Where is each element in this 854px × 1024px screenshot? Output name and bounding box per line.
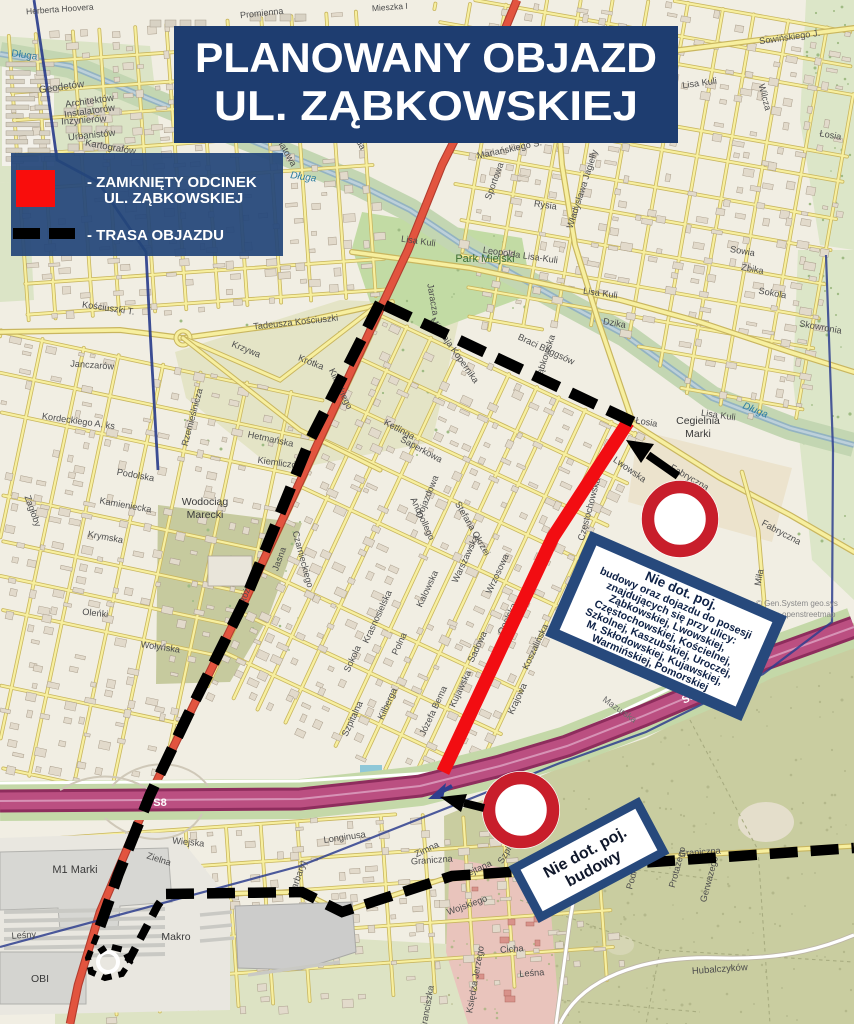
svg-text:OBI: OBI [31,973,49,985]
svg-text:Makro: Makro [161,931,190,943]
svg-text:Cegielnia: Cegielnia [676,415,720,427]
svg-text:© Gen.System geo.sys: © Gen.System geo.sys [756,599,838,608]
svg-text:- TRASA OBJAZDU: - TRASA OBJAZDU [87,227,224,244]
svg-text:Cicha: Cicha [500,943,525,955]
svg-text:Marecki: Marecki [187,509,224,521]
svg-text:Wodociąg: Wodociąg [182,496,229,508]
svg-text:UL. ZĄBKOWSKIEJ: UL. ZĄBKOWSKIEJ [214,82,638,129]
svg-text:UL. ZĄBKOWSKIEJ: UL. ZĄBKOWSKIEJ [104,190,243,207]
svg-text:S8: S8 [153,797,166,809]
svg-text:PLANOWANY OBJAZD: PLANOWANY OBJAZD [195,34,657,81]
svg-text:- ZAMKNIĘTY ODCINEK: - ZAMKNIĘTY ODCINEK [87,174,257,191]
svg-text:M1 Marki: M1 Marki [52,864,97,876]
svg-text:Leśny: Leśny [11,929,37,941]
svg-text:Marki: Marki [685,428,711,440]
svg-text:Leśna: Leśna [519,967,546,979]
